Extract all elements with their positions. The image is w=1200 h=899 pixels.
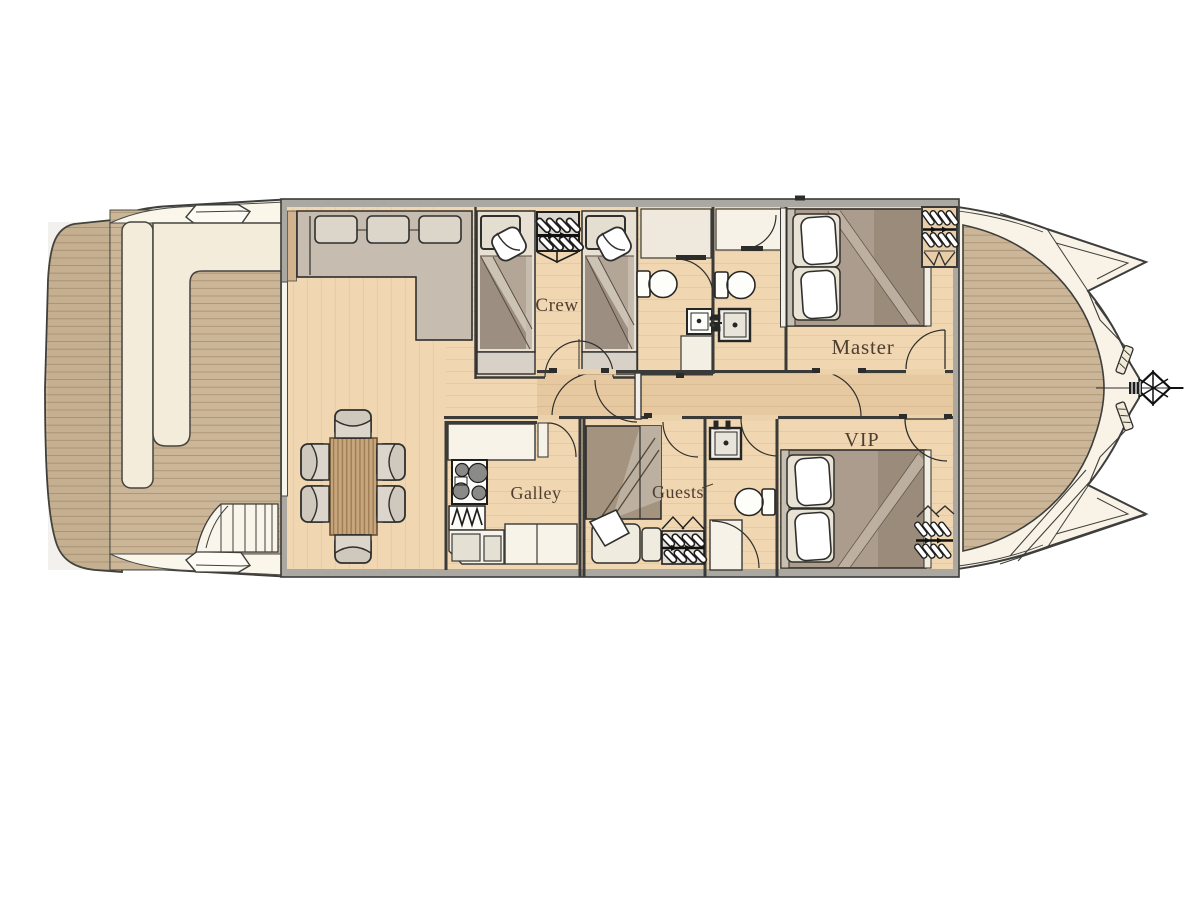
- svg-text:Guests: Guests: [652, 482, 704, 502]
- svg-text:VIP: VIP: [844, 429, 879, 451]
- svg-text:Galley: Galley: [511, 483, 562, 503]
- svg-text:Crew: Crew: [535, 295, 578, 316]
- svg-text:Master: Master: [831, 335, 894, 359]
